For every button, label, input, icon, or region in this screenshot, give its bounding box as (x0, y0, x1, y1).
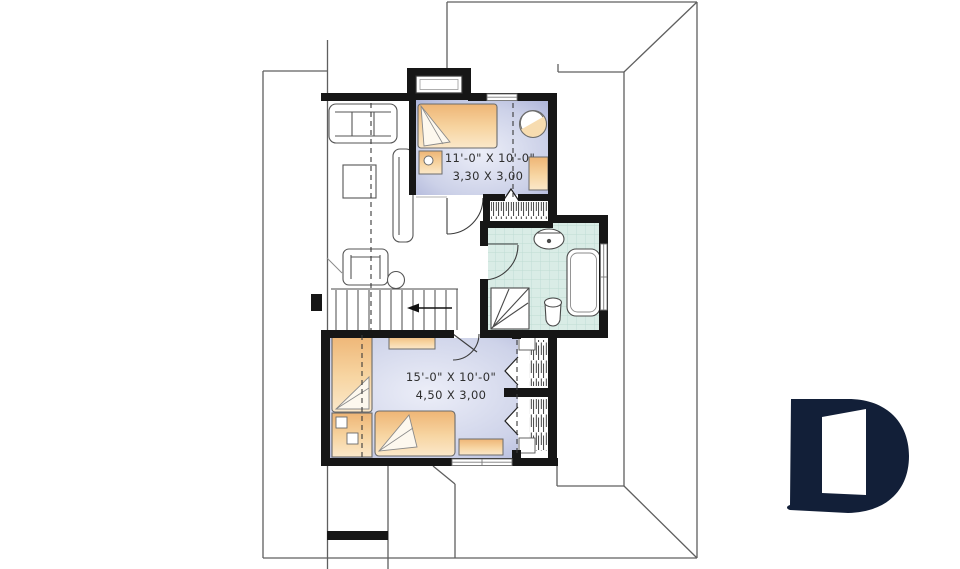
toilet-tank (545, 298, 562, 307)
upper-bedroom-door-arc (447, 198, 483, 234)
lamp (424, 156, 433, 165)
armchair (343, 249, 388, 285)
loveseat (329, 104, 397, 143)
stair-wall-stub (311, 294, 322, 311)
dresser-bottom (459, 439, 503, 455)
lower-bedroom-dim-metric: 4,50 X 3,00 (416, 388, 487, 402)
floor-plan-drawing: 11'-0" X 10'-0" 3,30 X 3,00 (0, 0, 960, 569)
floor-plan-page: 11'-0" X 10'-0" 3,30 X 3,00 (0, 0, 960, 569)
closet-shelf-bottom (519, 438, 535, 453)
lower-bedroom-dim-imperial: 15'-0" X 10'-0" (406, 370, 496, 384)
staircase (331, 289, 458, 330)
closet-shelf-top (519, 337, 535, 350)
upper-bedroom-dim-imperial: 11'-0" X 10'-0" (445, 151, 535, 165)
closet-divider-wall (504, 388, 549, 397)
drummond-logo (787, 399, 909, 513)
chimney (327, 531, 388, 540)
closet-hatch (491, 202, 547, 219)
bathtub (567, 249, 600, 316)
round-table (388, 272, 405, 289)
sink-drain (547, 239, 550, 242)
